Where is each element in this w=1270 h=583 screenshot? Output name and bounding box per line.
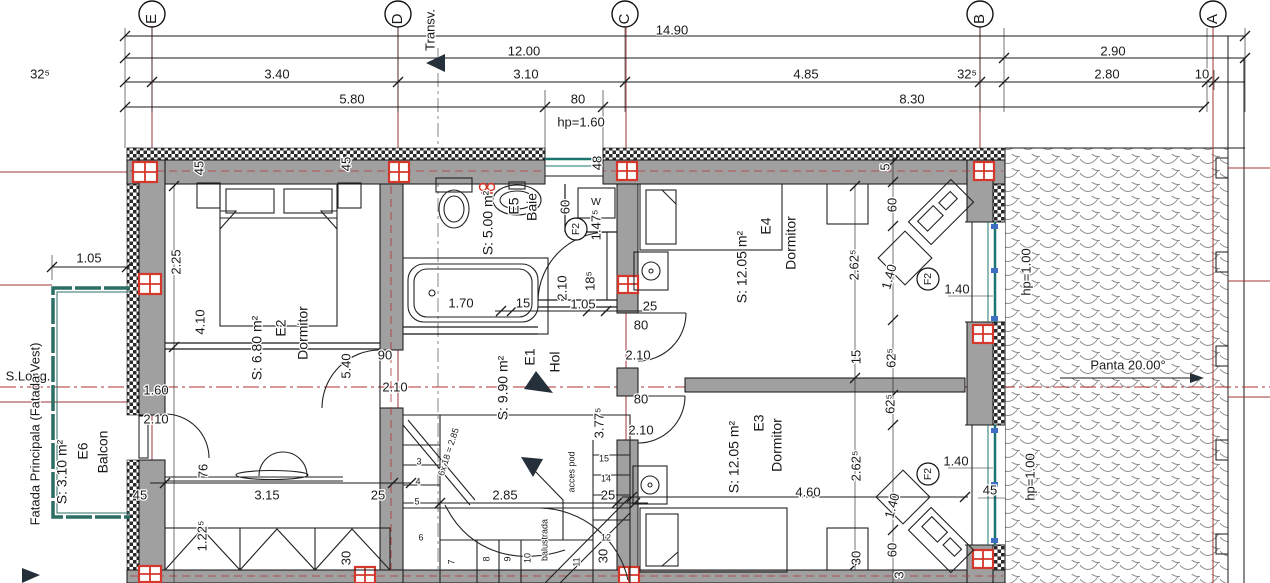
symbols-label: F2 <box>922 468 934 480</box>
floor-plan-canvas: 14.9012.002.9032⁵3.403.104.8532⁵2.80105.… <box>0 0 1270 583</box>
stairs-label: 11 <box>571 557 581 566</box>
symbols-label: F2 <box>922 273 934 285</box>
dims-label: 1.47⁵ <box>588 210 603 241</box>
roof-label: Panta 20.00° <box>1090 357 1165 372</box>
stairs-label: 5 <box>414 496 419 506</box>
grid-axis-label: E <box>143 14 160 24</box>
dims-label: 60 <box>884 198 899 212</box>
dims-label: 1.22⁵ <box>194 521 209 552</box>
dims-label: 32⁵ <box>957 66 977 81</box>
dims-label: 4.85 <box>793 66 818 81</box>
doors-label: 80 <box>634 391 648 406</box>
dims-label: 25 <box>643 298 657 313</box>
doors-label: 80 <box>634 317 648 332</box>
stairs-label: 14 <box>601 473 611 483</box>
dims-label: 10 <box>1195 66 1209 81</box>
dims-label: 3.77⁵ <box>591 408 606 439</box>
dims-label: 15 <box>516 295 530 310</box>
room-area-label: S: 12.05 m² <box>734 230 750 303</box>
dims-label: 1.05 <box>570 296 595 311</box>
doors-label: 1.60 <box>143 382 168 397</box>
room-name-label: Dormitor <box>769 418 785 472</box>
stairs-label: 7 <box>446 559 456 564</box>
dims-label: 2.90 <box>1100 43 1125 58</box>
dims-label: 30 <box>338 551 353 565</box>
room-name-label: Baie <box>524 193 540 221</box>
doors-label: 2.10 <box>143 411 168 426</box>
dims-label: 2.25 <box>168 249 183 274</box>
dims-label: 1.40 <box>944 281 969 296</box>
dims-label: 30 <box>595 549 610 563</box>
room-name-label: Dormitor <box>783 216 799 270</box>
room-name-label: Hol <box>547 351 563 372</box>
stairs-label: 10 <box>522 553 532 563</box>
dims-label: 45 <box>338 157 353 171</box>
grid-axis-label: D <box>389 13 406 24</box>
dims-label: 60 <box>884 543 899 557</box>
stairs-label: balustrada <box>539 519 549 561</box>
room-id-label: E4 <box>758 217 774 234</box>
room-id-label: E6 <box>75 442 91 459</box>
dims-label: 1.70 <box>448 295 473 310</box>
stairs-label: 15 <box>599 453 609 463</box>
dims-label: 5 <box>877 163 892 170</box>
dims-label: 4.10 <box>192 309 207 334</box>
dims-label: 32⁵ <box>30 66 50 81</box>
dims-label: 4.60 <box>795 484 820 499</box>
symbols-label: W <box>591 196 601 208</box>
room-id-label: E2 <box>273 319 289 336</box>
grid-axis-label: B <box>971 14 988 24</box>
stairs-label: 12 <box>601 532 611 542</box>
stairs-label: acces pod <box>566 451 576 492</box>
doors-label: 2.10 <box>382 379 407 394</box>
grid-axis-label: C <box>616 13 633 24</box>
dims-label: 2.62⁵ <box>846 250 861 281</box>
dims-label: 8.30 <box>899 91 924 106</box>
dims-label: 76 <box>195 464 210 478</box>
dims-label: 62⁵ <box>882 394 897 414</box>
dims-label: 2.80 <box>1094 66 1119 81</box>
roof-label: hp=1.00 <box>1018 248 1033 295</box>
dims-label: 3 <box>891 571 906 578</box>
room-area-label: S: 3.10 m² <box>54 439 70 504</box>
dims-label: 1.40 <box>943 453 968 468</box>
room-area-label: S: 12.05 m² <box>726 420 742 493</box>
dims-label: 2.10 <box>554 275 569 300</box>
dims-label: 18⁵ <box>582 271 597 291</box>
room-name-label: Dormitor <box>295 306 311 360</box>
dims-label: 45 <box>133 487 147 502</box>
dims-label: 3.10 <box>513 66 538 81</box>
doors-label: 5.40 <box>338 353 353 378</box>
doors-label: 2.10 <box>628 422 653 437</box>
stairs-label: 4 <box>415 476 420 486</box>
doors-label: 2.10 <box>625 347 650 362</box>
room-area-label: S: 5.00 m² <box>480 190 496 255</box>
dims-label: 2.62⁵ <box>848 451 863 482</box>
symbols-label: F2 <box>570 223 582 235</box>
dims-label: 45 <box>191 161 206 175</box>
dims-label: 14.90 <box>656 22 689 37</box>
doors-label: 90 <box>378 347 392 362</box>
room-area-label: S: 6.80 m² <box>249 315 265 380</box>
dims-label: 45 <box>983 482 997 497</box>
room-id-label: E1 <box>522 348 538 365</box>
roof-label: hp=1.00 <box>1022 453 1037 500</box>
grid-axis-label: A <box>1204 14 1221 24</box>
stairs-label: 6 <box>418 532 423 542</box>
dims-label: 1.05 <box>76 250 101 265</box>
dims-label: 5.80 <box>339 91 364 106</box>
dims-label: hp=1.60 <box>557 114 604 129</box>
dims-label: 25 <box>601 487 615 502</box>
room-area-label: S: 9.90 m² <box>495 355 511 420</box>
floor-plan-page: 14.9012.002.9032⁵3.403.104.8532⁵2.80105.… <box>0 0 1270 583</box>
room-id-label: E3 <box>751 414 767 431</box>
sections-label: Transv. <box>422 9 437 51</box>
dims-label: 3.40 <box>264 66 289 81</box>
sections-label: Fatada Principala (Fatada Vest) <box>27 343 42 526</box>
stairs-label: 8 <box>481 556 491 561</box>
dims-label: 80 <box>571 91 585 106</box>
room-name-label: Balcon <box>95 431 111 474</box>
dims-label: 12.00 <box>508 43 541 58</box>
stairs-label: 3 <box>416 456 421 466</box>
stairs-label: 9 <box>502 556 512 561</box>
dims-label: 62⁵ <box>883 348 898 368</box>
dims-label: 15 <box>848 350 863 364</box>
room-id-label: E5 <box>506 197 522 214</box>
dims-label: 25 <box>371 487 385 502</box>
dims-label: 3.15 <box>254 487 279 502</box>
dims-label: 2.85 <box>492 487 517 502</box>
dims-label: 30 <box>848 551 863 565</box>
dims-label: 60 <box>557 200 572 214</box>
dims-label: 48 <box>589 156 604 170</box>
